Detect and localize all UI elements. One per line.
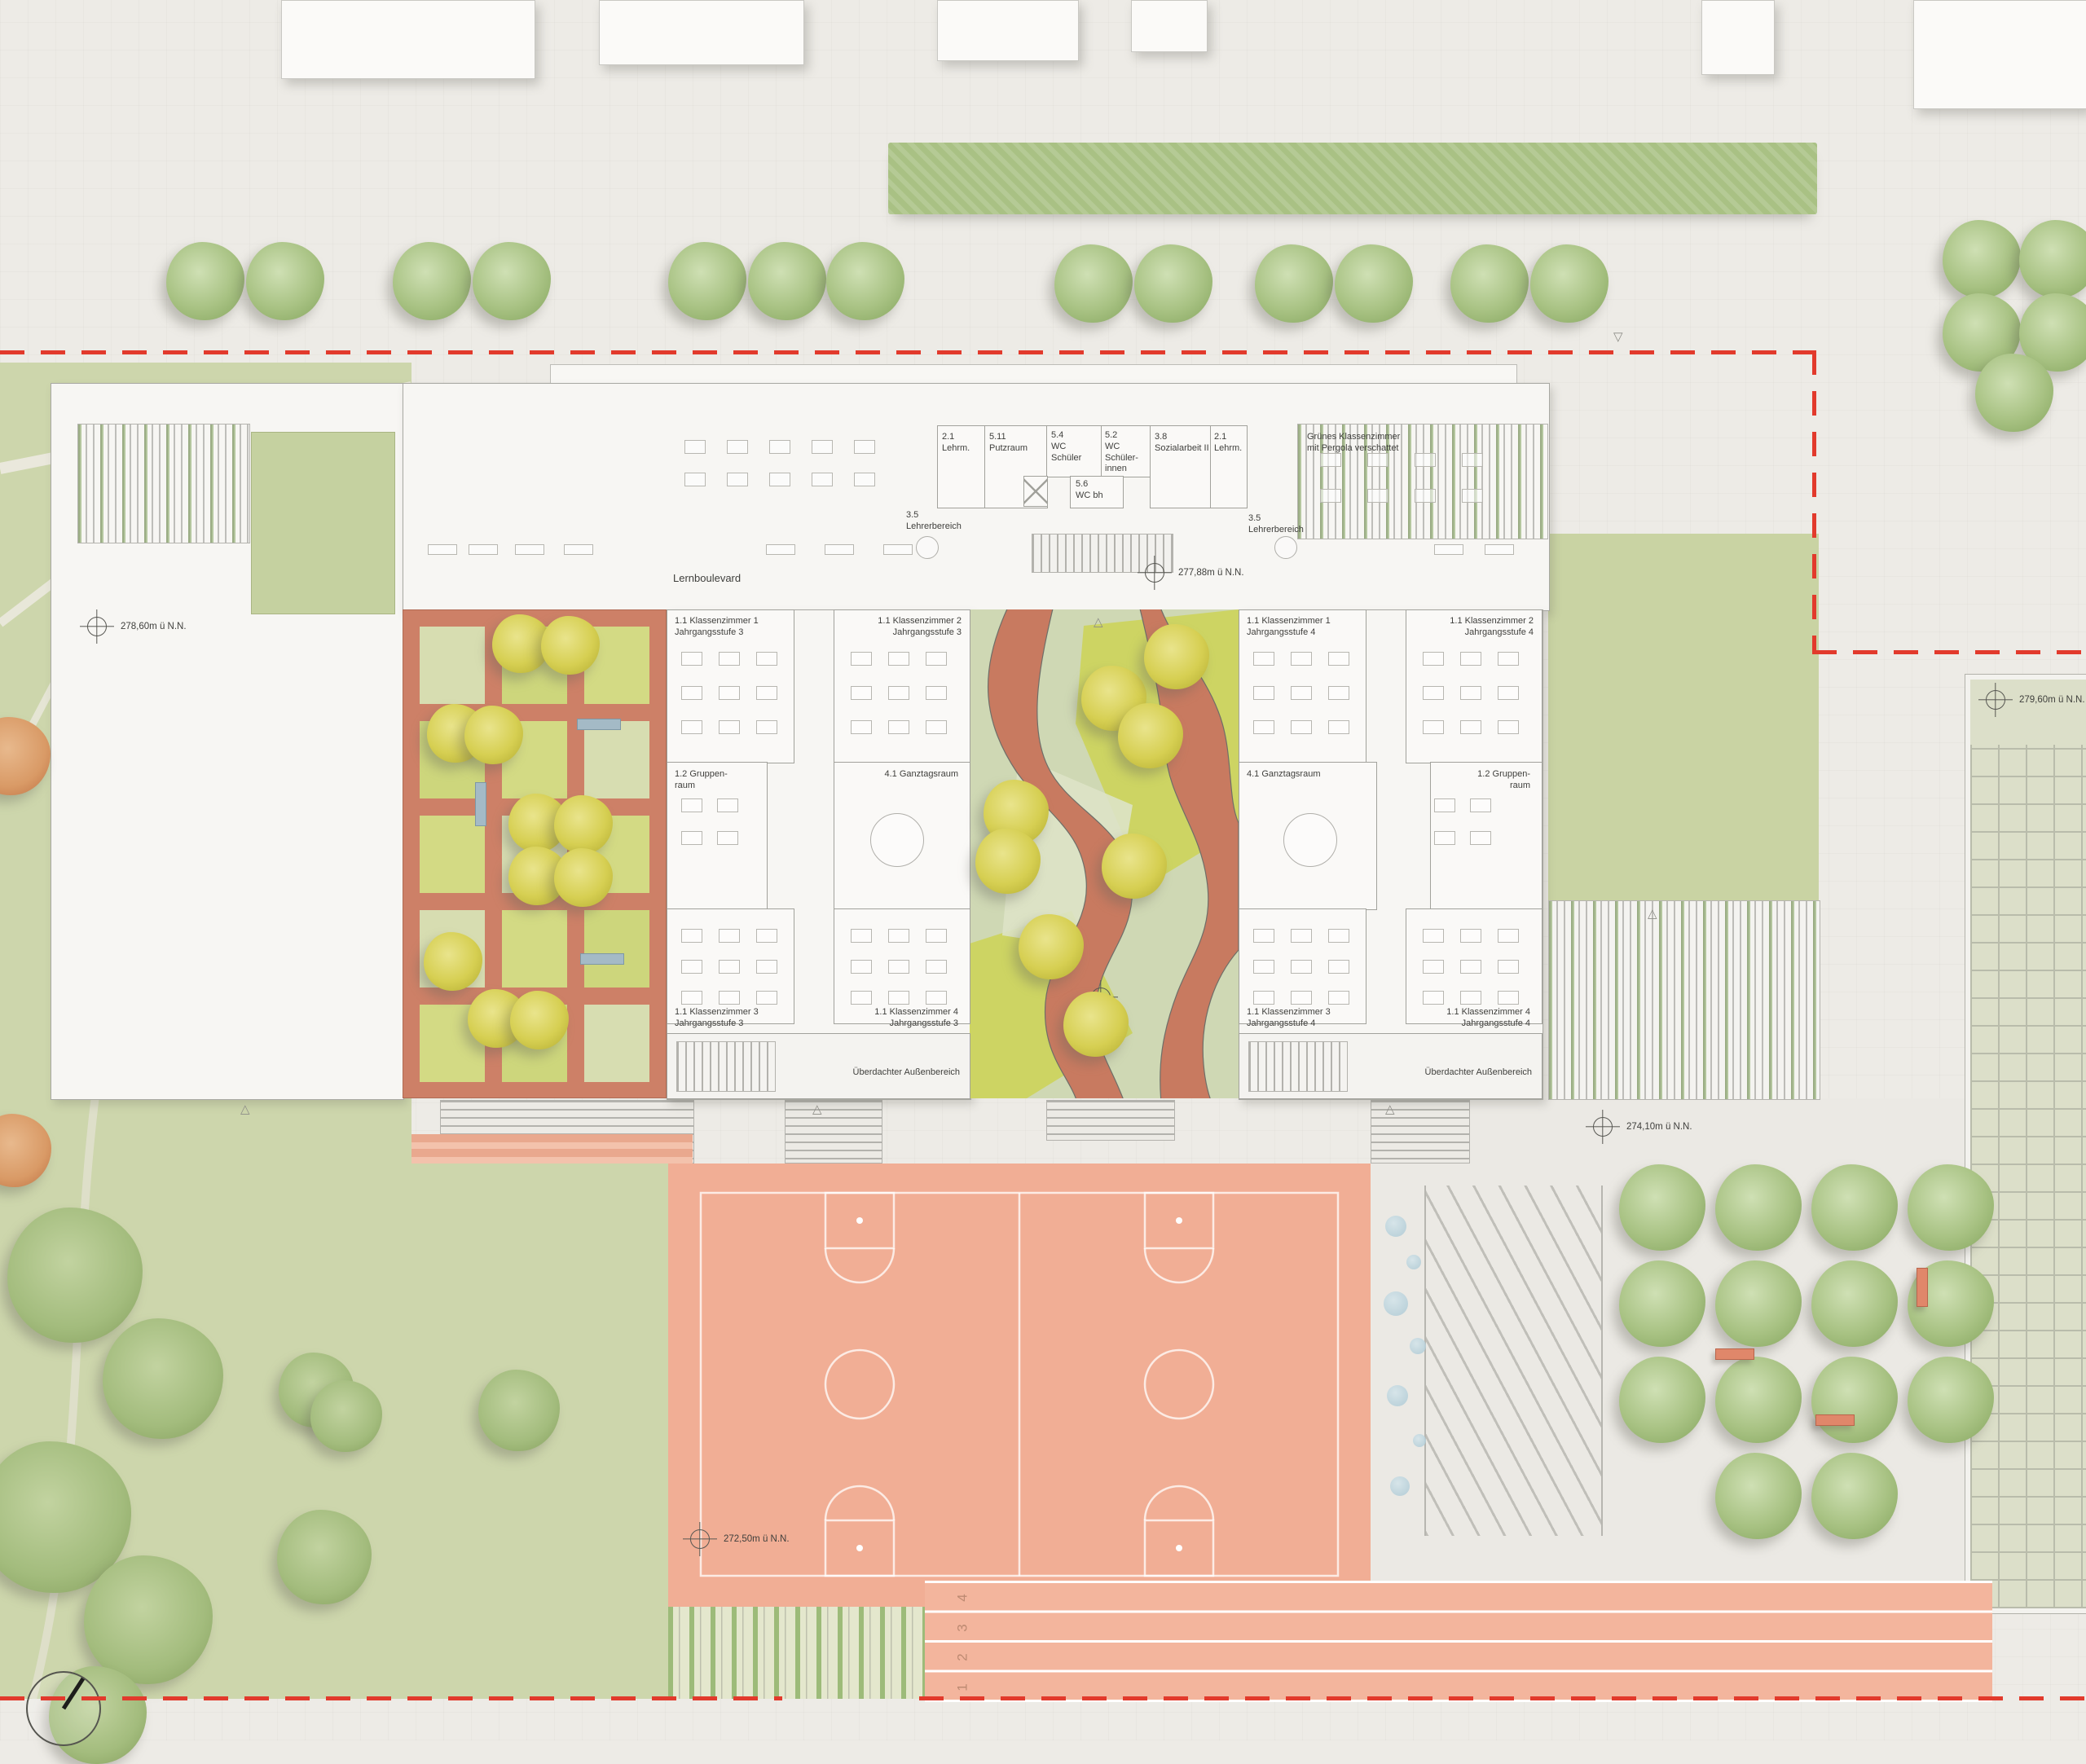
desk-glyph: [1328, 720, 1349, 734]
desk-glyph: [851, 720, 872, 734]
room-label: 2.1 Lehrm.: [1214, 432, 1242, 455]
desk-glyph: [812, 473, 833, 486]
desk-glyph: [769, 473, 790, 486]
level-crosshair-icon: [1586, 1110, 1620, 1144]
desk-glyph: [717, 831, 738, 845]
bench: [515, 544, 544, 555]
bench: [1917, 1268, 1928, 1307]
desk-glyph: [1470, 798, 1491, 812]
desk-glyph: [851, 929, 872, 943]
east-pergola-garden: [1548, 900, 1820, 1100]
level-marker-east-court: 279,60m ü N.N.: [1978, 683, 2085, 717]
desk-glyph: [888, 960, 909, 974]
desk-glyph: [1328, 929, 1349, 943]
desk-glyph: [1498, 720, 1519, 734]
level-marker-boulevard: 277,88m ü N.N.: [1138, 556, 1244, 590]
site-plan: { "plan": { "corridor_label": "Lernboule…: [0, 0, 2086, 1740]
plaza-diagonal-stairs: [1424, 1186, 1603, 1536]
desk-glyph: [1423, 929, 1444, 943]
level-marker-park: 278,60m ü N.N.: [80, 609, 187, 644]
bench: [577, 719, 621, 730]
compass-needle: [62, 1678, 85, 1710]
desk-glyph: [1367, 489, 1388, 503]
desk-glyph: [719, 991, 740, 1005]
desk-glyph: [854, 473, 875, 486]
desk-glyph: [719, 686, 740, 700]
bench: [580, 953, 624, 965]
planting-band: [668, 1607, 925, 1699]
shrub: [1390, 1476, 1410, 1496]
stair-band: [785, 1100, 882, 1164]
room-label: 1.1 Klassenzimmer 3 Jahrgangsstufe 4: [1247, 1007, 1331, 1030]
desk-glyph: [1253, 991, 1274, 1005]
desk-glyph: [756, 991, 777, 1005]
level-text: 277,88m ü N.N.: [1178, 568, 1244, 578]
desk-glyph: [719, 960, 740, 974]
shrub: [1413, 1434, 1426, 1447]
bench: [1815, 1414, 1855, 1426]
desk-glyph: [681, 720, 702, 734]
desk-glyph: [1498, 929, 1519, 943]
desk-glyph: [727, 440, 748, 454]
desk-glyph: [926, 686, 947, 700]
desk-glyph: [684, 440, 706, 454]
desk-glyph: [851, 652, 872, 666]
neighbour-building: [1913, 0, 2086, 109]
desk-glyph: [926, 929, 947, 943]
desk-glyph: [681, 652, 702, 666]
desk-glyph: [756, 686, 777, 700]
desk-glyph: [681, 929, 702, 943]
room-label: 4.1 Ganztagsraum: [1247, 769, 1321, 781]
neighbour-building: [1131, 0, 1208, 52]
desk-glyph: [684, 473, 706, 486]
round-table: [1283, 813, 1337, 867]
room-label: 1.1 Klassenzimmer 2 Jahrgangsstufe 3: [878, 616, 962, 639]
triangle-marker: △: [1094, 614, 1103, 629]
north-room-strip: 2.1 Lehrm. 5.11 Putzraum 5.4 WC Schüler …: [937, 425, 1296, 510]
desk-glyph: [1423, 652, 1444, 666]
level-marker-plaza: 274,10m ü N.N.: [1586, 1110, 1692, 1144]
desk-glyph: [1498, 652, 1519, 666]
desk-glyph: [681, 686, 702, 700]
desk-glyph: [1291, 652, 1312, 666]
garden-cell: [584, 1005, 649, 1082]
desk-glyph: [851, 991, 872, 1005]
bench: [564, 544, 593, 555]
desk-glyph: [1423, 686, 1444, 700]
desk-glyph: [1291, 929, 1312, 943]
room-label: 5.6 WC bh: [1076, 479, 1103, 502]
round-table: [870, 813, 924, 867]
west-wing-pergola: [77, 424, 250, 543]
desk-glyph: [681, 991, 702, 1005]
desk-glyph: [681, 798, 702, 812]
desk-glyph: [719, 652, 740, 666]
level-text: 274,10m ü N.N.: [1626, 1122, 1692, 1132]
tree: [2019, 220, 2086, 298]
bench: [475, 782, 486, 826]
stair-band-salmon: [411, 1134, 693, 1164]
desk-glyph: [1434, 831, 1455, 845]
desk-glyph: [1320, 453, 1341, 467]
desk-glyph: [1253, 960, 1274, 974]
desk-glyph: [1328, 960, 1349, 974]
triangle-marker: ▽: [1613, 329, 1623, 344]
teacher-table: [1274, 536, 1297, 559]
bench: [428, 544, 457, 555]
desk-glyph: [812, 440, 833, 454]
desk-glyph: [926, 720, 947, 734]
covered-area-label: Überdachter Außenbereich: [853, 1067, 960, 1079]
desk-glyph: [756, 720, 777, 734]
level-crosshair-icon: [683, 1522, 717, 1556]
level-text: 278,60m ü N.N.: [121, 622, 187, 631]
garden-cell: [502, 910, 567, 988]
desk-glyph: [756, 652, 777, 666]
bench: [1434, 544, 1463, 555]
site-boundary-line: [919, 1696, 2086, 1700]
desk-glyph: [888, 720, 909, 734]
site-boundary-line: [1812, 650, 2086, 654]
desk-glyph: [888, 991, 909, 1005]
room-label: 2.1 Lehrm.: [942, 432, 970, 455]
site-boundary-line: [1812, 350, 1816, 653]
desk-glyph: [681, 831, 702, 845]
room-label: 1.2 Gruppen- raum: [675, 769, 728, 792]
lane-number: 3: [955, 1624, 971, 1631]
desk-glyph: [1415, 453, 1436, 467]
green-classroom-label: Grünes Klassenzimmer mit Pergola verscha…: [1307, 432, 1400, 455]
bench: [766, 544, 795, 555]
lane-number: 2: [955, 1653, 971, 1661]
garden-cell: [584, 721, 649, 798]
west-wing-green-roof: [251, 432, 395, 614]
desk-glyph: [727, 473, 748, 486]
room-label: 1.1 Klassenzimmer 1 Jahrgangsstufe 3: [675, 616, 759, 639]
desk-glyph: [888, 652, 909, 666]
desk-glyph: [1498, 991, 1519, 1005]
teacher-area-label-east: 3.5 Lehrerbereich: [1248, 513, 1304, 536]
room-label: 1.2 Gruppen- raum: [1477, 769, 1530, 792]
room-label: 3.8 Sozialarbeit II: [1155, 432, 1209, 455]
stair-band: [1046, 1100, 1175, 1141]
desk-glyph: [756, 929, 777, 943]
stairs: [1248, 1041, 1348, 1092]
desk-glyph: [1253, 720, 1274, 734]
desk-glyph: [926, 991, 947, 1005]
room-label: 1.1 Klassenzimmer 2 Jahrgangsstufe 4: [1450, 616, 1534, 639]
level-text: 279,60m ü N.N.: [2019, 695, 2085, 705]
desk-glyph: [1253, 652, 1274, 666]
neighbour-building: [937, 0, 1079, 61]
site-boundary-line: [0, 350, 1815, 354]
desk-glyph: [1423, 991, 1444, 1005]
garden-cell: [420, 816, 485, 893]
desk-glyph: [769, 440, 790, 454]
neighbour-building: [599, 0, 804, 65]
room-label: 4.1 Ganztagsraum: [885, 769, 959, 781]
desk-glyph: [1291, 686, 1312, 700]
desk-glyph: [851, 686, 872, 700]
shrub: [1406, 1255, 1421, 1269]
neighbour-building: [281, 0, 535, 79]
bench: [825, 544, 854, 555]
room-label: 5.2 WC Schüler- innen: [1105, 430, 1138, 475]
teacher-area-label-west: 3.5 Lehrerbereich: [906, 510, 962, 533]
garden-cell: [584, 910, 649, 988]
room-label: 1.1 Klassenzimmer 1 Jahrgangsstufe 4: [1247, 616, 1331, 639]
hedge-strip: [888, 143, 1817, 214]
garden-cell: [420, 627, 485, 704]
bench: [469, 544, 498, 555]
east-lawn: [1548, 534, 1819, 900]
level-crosshair-icon: [1138, 556, 1172, 590]
desk-glyph: [1328, 991, 1349, 1005]
level-crosshair-icon: [80, 609, 114, 644]
desk-glyph: [1462, 489, 1483, 503]
desk-glyph: [1423, 720, 1444, 734]
level-marker-field: 272,50m ü N.N.: [683, 1522, 790, 1556]
desk-glyph: [1328, 686, 1349, 700]
desk-glyph: [1462, 453, 1483, 467]
desk-glyph: [1460, 960, 1481, 974]
desk-glyph: [681, 960, 702, 974]
room-label: 1.1 Klassenzimmer 4 Jahrgangsstufe 4: [1446, 1007, 1530, 1030]
running-track: 4 3 2 1: [925, 1581, 1992, 1702]
desk-glyph: [1434, 798, 1455, 812]
triangle-marker: △: [812, 1102, 822, 1116]
bench: [1715, 1348, 1754, 1360]
cluster-east-interior: 1.1 Klassenzimmer 1 Jahrgangsstufe 4 1.1…: [1239, 609, 1542, 1098]
desk-glyph: [1460, 720, 1481, 734]
covered-area-label: Überdachter Außenbereich: [1425, 1067, 1532, 1079]
desk-glyph: [1498, 686, 1519, 700]
east-sport-court: [1965, 675, 2086, 1613]
desk-glyph: [854, 440, 875, 454]
desk-glyph: [1367, 453, 1388, 467]
desk-glyph: [719, 720, 740, 734]
shrub: [1410, 1338, 1426, 1354]
desk-glyph: [1460, 929, 1481, 943]
level-crosshair-icon: [1978, 683, 2013, 717]
desk-glyph: [1423, 960, 1444, 974]
desk-glyph: [1320, 489, 1341, 503]
desk-glyph: [1253, 929, 1274, 943]
desk-glyph: [1291, 991, 1312, 1005]
desk-glyph: [888, 929, 909, 943]
elevator-core: [1023, 476, 1048, 507]
desk-glyph: [1415, 489, 1436, 503]
corridor-label: Lernboulevard: [673, 572, 741, 585]
stairs: [676, 1041, 776, 1092]
room-label: 5.4 WC Schüler: [1051, 430, 1081, 464]
desk-glyph: [1291, 960, 1312, 974]
court-grid: [1970, 745, 2086, 1608]
desk-glyph: [1253, 686, 1274, 700]
lane-number: 4: [955, 1594, 971, 1601]
neighbour-building: [1701, 0, 1775, 75]
triangle-marker: △: [1385, 1102, 1395, 1116]
triangle-marker: △: [1648, 906, 1657, 921]
teacher-table: [916, 536, 939, 559]
desk-glyph: [1328, 652, 1349, 666]
desk-glyph: [888, 686, 909, 700]
shrub: [1384, 1291, 1408, 1316]
desk-glyph: [1460, 652, 1481, 666]
desk-glyph: [756, 960, 777, 974]
cluster-west-interior: 1.1 Klassenzimmer 1 Jahrgangsstufe 3 1.1…: [667, 609, 970, 1098]
desk-glyph: [1460, 686, 1481, 700]
shrub: [1387, 1385, 1408, 1406]
desk-glyph: [926, 960, 947, 974]
room-label: 1.1 Klassenzimmer 3 Jahrgangsstufe 3: [675, 1007, 759, 1030]
desk-glyph: [1498, 960, 1519, 974]
lane-number: 1: [955, 1683, 971, 1691]
bench: [883, 544, 913, 555]
room-label: 5.11 Putzraum: [989, 432, 1028, 455]
room-label: 1.1 Klassenzimmer 4 Jahrgangsstufe 3: [874, 1007, 958, 1030]
shrub: [1385, 1216, 1406, 1237]
triangle-marker: △: [240, 1102, 250, 1116]
level-text: 272,50m ü N.N.: [724, 1534, 790, 1544]
site-boundary-line: [0, 1696, 782, 1700]
bench: [1485, 544, 1514, 555]
library-area: [675, 425, 935, 523]
desk-glyph: [1291, 720, 1312, 734]
desk-glyph: [1460, 991, 1481, 1005]
desk-glyph: [926, 652, 947, 666]
north-arrow-compass: [26, 1671, 101, 1746]
desk-glyph: [1470, 831, 1491, 845]
desk-glyph: [719, 929, 740, 943]
desk-glyph: [717, 798, 738, 812]
desk-glyph: [851, 960, 872, 974]
